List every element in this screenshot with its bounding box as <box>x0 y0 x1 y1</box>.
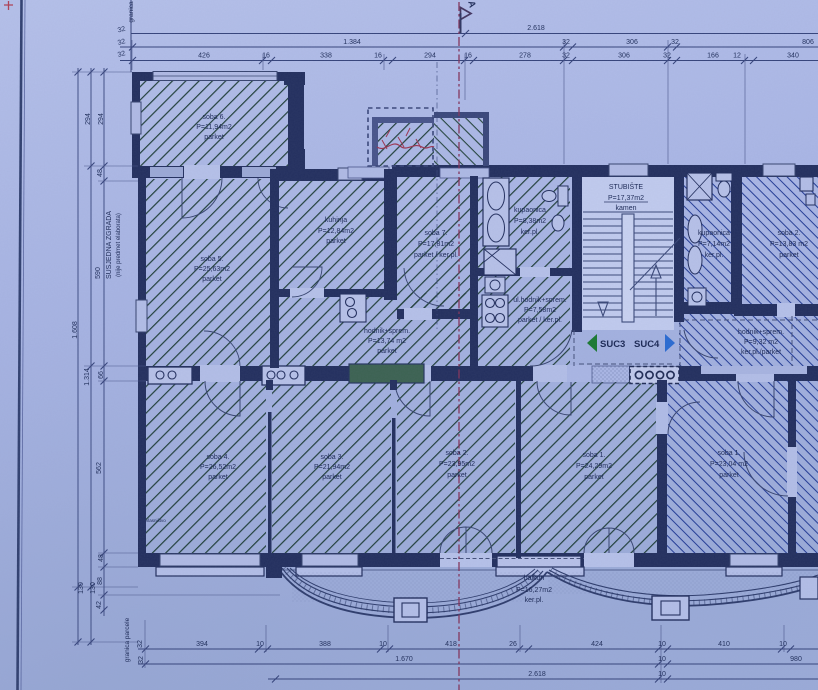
svg-text:10: 10 <box>779 641 787 648</box>
svg-text:parket: parket <box>447 472 467 479</box>
svg-text:(nije predmet elaborata): (nije predmet elaborata) <box>116 213 122 277</box>
svg-text:P=23,95m2: P=23,95m2 <box>439 461 475 468</box>
svg-text:P=7,14m2: P=7,14m2 <box>698 241 730 248</box>
svg-text:parket: parket <box>322 474 342 481</box>
svg-text:1.670: 1.670 <box>395 656 413 663</box>
svg-text:STUBIŠTE: STUBIŠTE <box>609 182 644 191</box>
svg-text:P=11,94m2: P=11,94m2 <box>196 124 232 131</box>
svg-text:soba 3.: soba 3. <box>321 454 344 461</box>
svg-text:1.314: 1.314 <box>84 368 91 386</box>
svg-text:P=13,74 m2: P=13,74 m2 <box>368 338 406 345</box>
svg-text:10: 10 <box>658 656 666 663</box>
svg-text:394: 394 <box>196 641 208 648</box>
svg-text:P=24,29m2: P=24,29m2 <box>576 463 612 470</box>
svg-text:1.384: 1.384 <box>343 39 361 46</box>
svg-text:parket: parket <box>204 134 224 141</box>
svg-text:kuhinja: kuhinja <box>325 217 347 224</box>
svg-text:parket: parket <box>779 252 799 259</box>
svg-text:SUC4: SUC4 <box>634 339 660 350</box>
svg-text:32: 32 <box>138 656 145 664</box>
svg-text:410: 410 <box>718 641 730 648</box>
svg-text:16: 16 <box>464 53 472 60</box>
svg-text:vlasništvo: vlasništvo <box>146 518 166 523</box>
svg-text:32: 32 <box>562 39 570 46</box>
svg-text:hodnik+sprem.: hodnik+sprem. <box>364 328 410 335</box>
svg-text:ker.pl.: ker.pl. <box>525 597 544 604</box>
svg-text:granica: granica <box>128 1 135 23</box>
svg-text:10: 10 <box>256 641 264 648</box>
svg-text:parket / ker.pl.: parket / ker.pl. <box>414 252 458 259</box>
svg-text:balkon: balkon <box>524 575 545 582</box>
svg-text:parket: parket <box>377 348 397 355</box>
svg-text:418: 418 <box>445 641 457 648</box>
svg-text:parket / ker.pl.: parket / ker.pl. <box>518 317 562 324</box>
svg-text:soba 1.: soba 1. <box>718 450 741 457</box>
svg-text:parket: parket <box>208 474 228 481</box>
svg-text:130: 130 <box>90 582 97 594</box>
svg-text:32: 32 <box>663 53 671 60</box>
svg-text:hodnik+sprem.: hodnik+sprem. <box>738 329 784 336</box>
svg-text:294: 294 <box>98 113 105 125</box>
svg-text:338: 338 <box>320 53 332 60</box>
svg-text:48: 48 <box>98 554 105 562</box>
svg-text:P=23,04 m2: P=23,04 m2 <box>710 461 748 468</box>
svg-text:P=9,32 m2: P=9,32 m2 <box>744 339 778 346</box>
svg-text:294: 294 <box>85 113 92 125</box>
svg-text:parket: parket <box>584 474 604 481</box>
svg-text:P=13,83 m2: P=13,83 m2 <box>770 241 808 248</box>
svg-text:66: 66 <box>98 371 105 379</box>
svg-text:parket: parket <box>326 238 346 245</box>
svg-text:340: 340 <box>787 53 799 60</box>
svg-text:562: 562 <box>96 462 103 474</box>
svg-text:P=17,37m2: P=17,37m2 <box>608 195 644 202</box>
svg-text:kupaonica: kupaonica <box>698 230 730 237</box>
svg-text:P=8,38m2: P=8,38m2 <box>514 218 546 225</box>
svg-text:soba 2.: soba 2. <box>446 450 469 457</box>
svg-text:32: 32 <box>137 640 144 648</box>
svg-text:306: 306 <box>626 39 638 46</box>
svg-text:P=25,63m2: P=25,63m2 <box>194 266 230 273</box>
svg-text:32: 32 <box>671 39 679 46</box>
svg-text:P=21,94m2: P=21,94m2 <box>314 464 350 471</box>
svg-text:ker.pl.: ker.pl. <box>521 229 540 236</box>
svg-text:42: 42 <box>96 601 103 609</box>
svg-text:26: 26 <box>509 641 517 648</box>
svg-text:388: 388 <box>319 641 331 648</box>
svg-text:32: 32 <box>562 53 570 60</box>
svg-text:306: 306 <box>618 53 630 60</box>
svg-text:2.618: 2.618 <box>527 25 545 32</box>
svg-text:980: 980 <box>790 656 802 663</box>
svg-text:278: 278 <box>519 53 531 60</box>
svg-text:P=12,84m2: P=12,84m2 <box>318 228 354 235</box>
svg-text:P=17,81m2: P=17,81m2 <box>418 241 454 248</box>
svg-text:granica parcele: granica parcele <box>124 617 131 662</box>
svg-text:P=16,27m2: P=16,27m2 <box>516 587 552 594</box>
svg-text:SUC3: SUC3 <box>600 339 625 350</box>
svg-text:590: 590 <box>95 267 102 279</box>
svg-text:ul.hodnik+sprem.: ul.hodnik+sprem. <box>513 297 567 304</box>
svg-text:kamen: kamen <box>615 205 636 212</box>
svg-text:806: 806 <box>802 39 814 46</box>
svg-text:P=26,52m2: P=26,52m2 <box>200 464 236 471</box>
svg-text:2.618: 2.618 <box>528 671 546 678</box>
svg-text:SUSJEDNA ZGRADA: SUSJEDNA ZGRADA <box>106 211 113 279</box>
svg-text:1.608: 1.608 <box>72 321 79 339</box>
svg-text:soba 2.: soba 2. <box>778 230 801 237</box>
svg-text:10: 10 <box>379 641 387 648</box>
svg-text:16: 16 <box>262 53 270 60</box>
svg-text:parket: parket <box>202 276 222 283</box>
svg-text:10: 10 <box>658 671 666 678</box>
svg-text:soba 5.: soba 5. <box>201 256 224 263</box>
svg-text:soba 4.: soba 4. <box>207 454 230 461</box>
svg-text:ker.pl./parket: ker.pl./parket <box>741 349 781 356</box>
svg-text:130: 130 <box>78 582 85 594</box>
svg-text:kupaonica: kupaonica <box>514 207 546 214</box>
svg-text:294: 294 <box>424 53 436 60</box>
svg-text:P=7,58m2: P=7,58m2 <box>524 307 556 314</box>
svg-text:parket: parket <box>719 472 739 479</box>
svg-text:10: 10 <box>658 641 666 648</box>
svg-text:88: 88 <box>97 577 104 585</box>
svg-text:48: 48 <box>97 169 104 177</box>
svg-text:16: 16 <box>374 53 382 60</box>
svg-text:426: 426 <box>198 53 210 60</box>
svg-text:424: 424 <box>591 641 603 648</box>
svg-text:soba 6.: soba 6. <box>203 114 226 121</box>
svg-text:166: 166 <box>707 53 719 60</box>
svg-text:soba 1.: soba 1. <box>583 452 606 459</box>
svg-text:12: 12 <box>733 53 741 60</box>
svg-text:soba 7.: soba 7. <box>425 230 448 237</box>
svg-text:ker.pl.: ker.pl. <box>705 252 724 259</box>
